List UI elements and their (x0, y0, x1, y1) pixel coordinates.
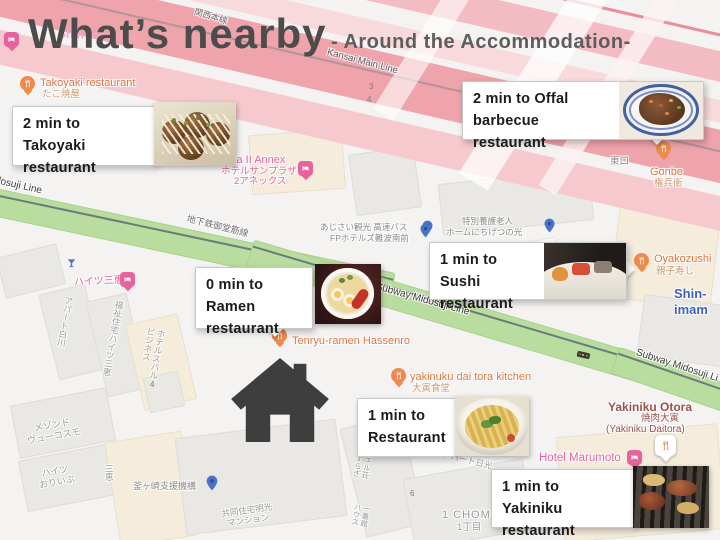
ramen-photo (315, 264, 381, 324)
poi-sublabel-gonbe: 権兵衛 (654, 178, 683, 189)
bed-icon (123, 275, 132, 284)
poi-sublabel-otora: 焼肉大寅 (641, 413, 679, 424)
bed-icon (7, 35, 16, 44)
utensils-icon (394, 371, 403, 380)
poi-label-oyakozushi[interactable]: Oyakozushi (654, 253, 711, 266)
sushi-photo (544, 243, 626, 299)
poi-sublabel-takoyaki: たこ焼屋 (42, 89, 80, 100)
east-exit-label: 東口 (610, 156, 629, 167)
poi-label-care-home: 特別養護老人 (462, 216, 513, 226)
map-pin-blue[interactable] (204, 472, 219, 493)
lodging-pin-sunplaza[interactable] (298, 161, 313, 176)
poi-label-ajisai: あじさい観光 高速バス (320, 222, 407, 232)
poi-label-marumoto[interactable]: Hotel Marumoto (539, 452, 621, 466)
callout-text: 1 min toSushi restaurant (430, 243, 544, 299)
title-subtitle: - Around the Accommodation- (331, 31, 631, 53)
title-main: What’s nearby (28, 10, 327, 57)
lodging-pin-marumoto[interactable] (627, 450, 642, 465)
poi-label-ajisai2: FPホテルズ難波南前 (330, 233, 409, 243)
block-number: 6 (410, 489, 414, 498)
poi-sublabel-oyakozushi: 親子寿し (656, 266, 694, 277)
platform-number: 3 (369, 82, 373, 91)
utensils-icon (659, 144, 668, 153)
callout-text: 1 min toYakiniku restaurant (492, 470, 634, 527)
bed-icon (301, 164, 310, 173)
map-pin-blue[interactable] (542, 215, 557, 236)
poi-label-haitsu-sankei[interactable]: ハイツ三恵 (74, 275, 124, 290)
poi-label-care-home2: ホームにちげつの光 (446, 227, 522, 237)
callout-takoyaki: 2 min toTakoyaki restaurant (12, 106, 156, 166)
callout-ramen: 0 min toRamen restaurant (195, 267, 313, 329)
map-pin-blue[interactable] (418, 220, 433, 241)
station-label-shin-imamiya[interactable]: Shin-imam (674, 286, 720, 317)
callout-restaurant: 1 min toRestaurant (357, 398, 457, 457)
yakiniku-photo (633, 466, 709, 528)
restaurant-pin-otora[interactable] (655, 435, 676, 456)
district-label-chome-jp: 1丁目 (457, 522, 481, 533)
poi-sublabel-otora2: (Yakiniku Daitora) (606, 424, 685, 436)
callout-text: 2 min toTakoyaki restaurant (13, 107, 155, 165)
building-label-sankei: 三恵 (104, 464, 114, 481)
building-label-ichiban: ハウス 一番館 (350, 503, 372, 528)
block-number: 4 (150, 380, 154, 389)
restaurant-pin-daitora-kitchen[interactable] (391, 368, 406, 383)
restaurant-pin-oyakozushi[interactable] (634, 253, 649, 268)
utensils-icon (637, 256, 646, 265)
callout-text: 2 min to Offalbarbecue restaurant (463, 82, 619, 139)
poi-label-kamagasaki: 釜ヶ崎支援機構 (133, 481, 196, 492)
callout-text: 0 min toRamen restaurant (196, 268, 312, 328)
lodging-pin-haitsu-sankei[interactable] (120, 272, 135, 287)
pin-icon (204, 472, 220, 494)
accommodation-house-icon (230, 356, 330, 449)
callout-yakiniku: 1 min toYakiniku restaurant (491, 469, 635, 528)
poi-sublabel-sunplaza2: 2アネックス (234, 176, 287, 187)
callout-text: 1 min toRestaurant (358, 399, 456, 456)
nearby-map-slide[interactable]: Kansai Main Line 関西本線 3 4 Midosuji Line … (0, 0, 720, 540)
lodging-pin-icon[interactable] (4, 32, 19, 47)
drink-icon (66, 256, 77, 274)
pin-icon (542, 215, 557, 236)
poi-sublabel-daitora-kitchen: 大寅食堂 (412, 383, 450, 394)
bed-icon (630, 453, 639, 462)
callout-offal: 2 min to Offalbarbecue restaurant (462, 81, 704, 140)
utensils-icon (660, 440, 671, 451)
restaurant-pin-takoyaki[interactable] (20, 76, 35, 91)
utensils-icon (23, 79, 32, 88)
poi-label-tenryu[interactable]: Tenryu-ramen Hassenro (292, 335, 410, 348)
platform-number: 4 (367, 95, 371, 104)
offal-photo (619, 82, 703, 139)
takoyaki-photo (154, 102, 236, 166)
udon-photo (455, 396, 529, 456)
pin-icon (418, 220, 433, 241)
callout-sushi: 1 min toSushi restaurant (429, 242, 627, 300)
